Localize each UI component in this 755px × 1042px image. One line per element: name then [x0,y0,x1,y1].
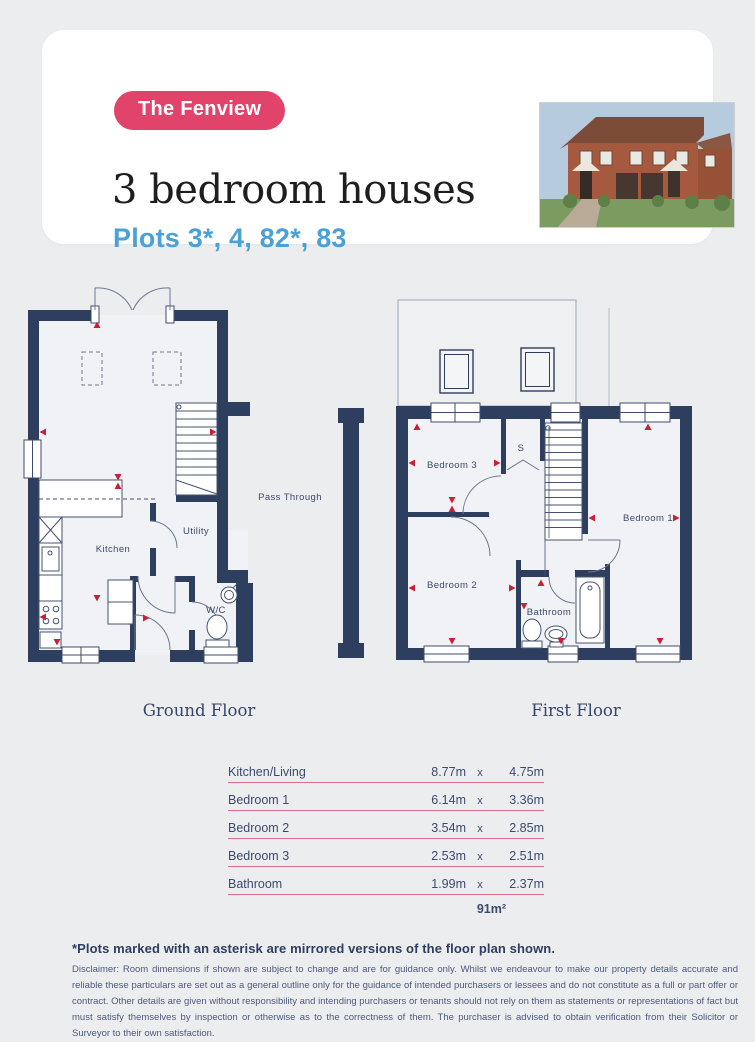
label-pass-through: Pass Through [258,492,322,503]
brochure-page: The Fenview 3 bedroom houses Plots 3*, 4… [0,0,755,1024]
page-title: 3 bedroom houses [112,167,475,213]
dimension-separator: x [466,823,494,835]
label-bedroom3: Bedroom 3 [427,460,477,471]
table-row: Kitchen/Living 8.77m x 4.75m [228,755,544,783]
room-width: 1.99m [414,877,466,891]
room-width: 3.54m [414,821,466,835]
toilet-icon [207,615,227,639]
house-photo [539,102,735,228]
label-bedroom2: Bedroom 2 [427,580,477,591]
ground-floor-plan: Kitchen Utility W/C Pass Through [24,288,364,663]
room-width: 8.77m [414,765,466,779]
dimension-separator: x [466,879,494,891]
room-name: Kitchen/Living [228,765,414,779]
room-depth: 2.37m [494,877,544,891]
plots-subtitle: Plots 3*, 4, 82*, 83 [113,223,347,254]
room-depth: 4.75m [494,765,544,779]
first-floor-plan: Bedroom 3 S Bedroom 1 Bedroom 2 Bathroom [396,300,692,662]
header-card: The Fenview 3 bedroom houses Plots 3*, 4… [42,30,713,244]
label-store: S [518,443,525,454]
plot-name-badge: The Fenview [114,91,285,130]
room-width: 2.53m [414,849,466,863]
room-name: Bedroom 1 [228,793,414,807]
label-utility: Utility [183,526,209,537]
stairs [176,403,217,495]
floor-plans: Kitchen Utility W/C Pass Through [0,280,755,690]
label-bathroom: Bathroom [527,607,571,618]
ground-floor-title: Ground Floor [119,701,279,720]
label-wc: W/C [206,605,226,616]
garage-door [641,173,663,199]
total-area: 91m² [228,902,544,916]
table-row: Bedroom 3 2.53m x 2.51m [228,839,544,867]
room-depth: 2.51m [494,849,544,863]
dimension-separator: x [466,767,494,779]
label-bedroom1: Bedroom 1 [623,513,673,524]
room-name: Bedroom 2 [228,821,414,835]
garage-door [616,173,638,199]
dimensions-table: Kitchen/Living 8.77m x 4.75m Bedroom 1 6… [228,755,544,916]
label-kitchen: Kitchen [96,544,131,555]
disclaimer-text: Disclaimer: Room dimensions if shown are… [72,962,738,1042]
mirrored-plots-note: *Plots marked with an asterisk are mirro… [72,941,555,956]
dimension-separator: x [466,795,494,807]
toilet-icon [523,619,541,641]
dimension-separator: x [466,851,494,863]
room-width: 6.14m [414,793,466,807]
room-name: Bathroom [228,877,414,891]
table-row: Bathroom 1.99m x 2.37m [228,867,544,895]
table-row: Bedroom 1 6.14m x 3.36m [228,783,544,811]
first-floor-title: First Floor [496,701,656,720]
table-row: Bedroom 2 3.54m x 2.85m [228,811,544,839]
room-depth: 3.36m [494,793,544,807]
room-depth: 2.85m [494,821,544,835]
room-name: Bedroom 3 [228,849,414,863]
